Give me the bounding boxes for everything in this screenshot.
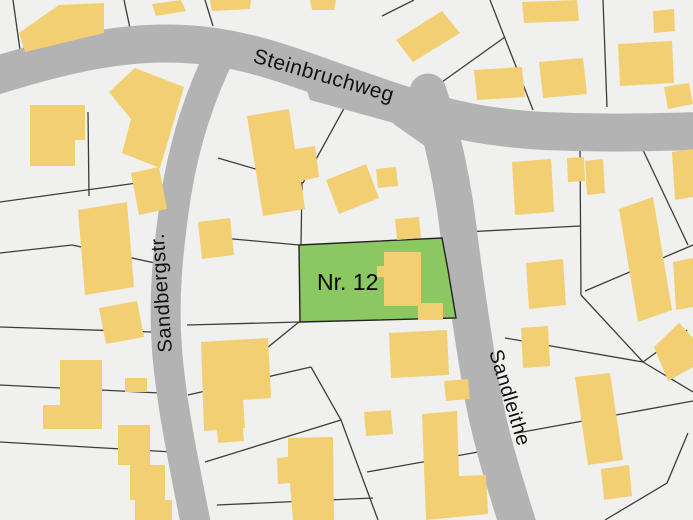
building (396, 11, 460, 62)
building (43, 360, 102, 429)
highlight-parcel-label: Nr. 12 (317, 269, 378, 295)
building (152, 0, 186, 16)
building (522, 0, 579, 23)
parcel-boundary (367, 452, 478, 472)
building (567, 157, 585, 182)
map-svg[interactable]: SteinbruchwegSandbergstr.SandleitheNr. 1… (0, 0, 693, 520)
building (125, 378, 147, 392)
building (673, 258, 693, 310)
building (210, 0, 251, 11)
building (364, 410, 393, 436)
building (326, 164, 379, 214)
map-canvas[interactable]: SteinbruchwegSandbergstr.SandleitheNr. 1… (0, 0, 693, 520)
building (619, 197, 672, 322)
building (277, 437, 334, 520)
building (575, 373, 623, 465)
parcel-boundary (603, 0, 607, 107)
building (395, 217, 421, 240)
building (131, 167, 167, 215)
building (539, 58, 587, 98)
building (474, 67, 525, 100)
building (201, 338, 271, 431)
building (310, 0, 336, 10)
building (118, 425, 172, 520)
building (216, 419, 244, 443)
building (247, 109, 319, 216)
parcel-boundary (382, 0, 414, 16)
building (389, 330, 449, 378)
building (526, 259, 566, 309)
parcel-boundary (187, 322, 300, 325)
building (376, 167, 398, 188)
building (672, 149, 693, 200)
building (585, 159, 605, 195)
building (664, 83, 693, 109)
building (618, 41, 674, 86)
parcel-boundary (581, 295, 643, 362)
building (653, 9, 675, 33)
parcel-boundary (13, 0, 21, 57)
building (99, 301, 144, 344)
building (30, 105, 85, 166)
building (512, 159, 554, 215)
parcel-boundary (465, 226, 580, 232)
building (601, 465, 632, 500)
building (78, 202, 134, 295)
parcel-boundary (88, 112, 89, 196)
building (444, 379, 470, 401)
building (418, 303, 443, 320)
building (521, 326, 550, 368)
building (198, 218, 234, 259)
